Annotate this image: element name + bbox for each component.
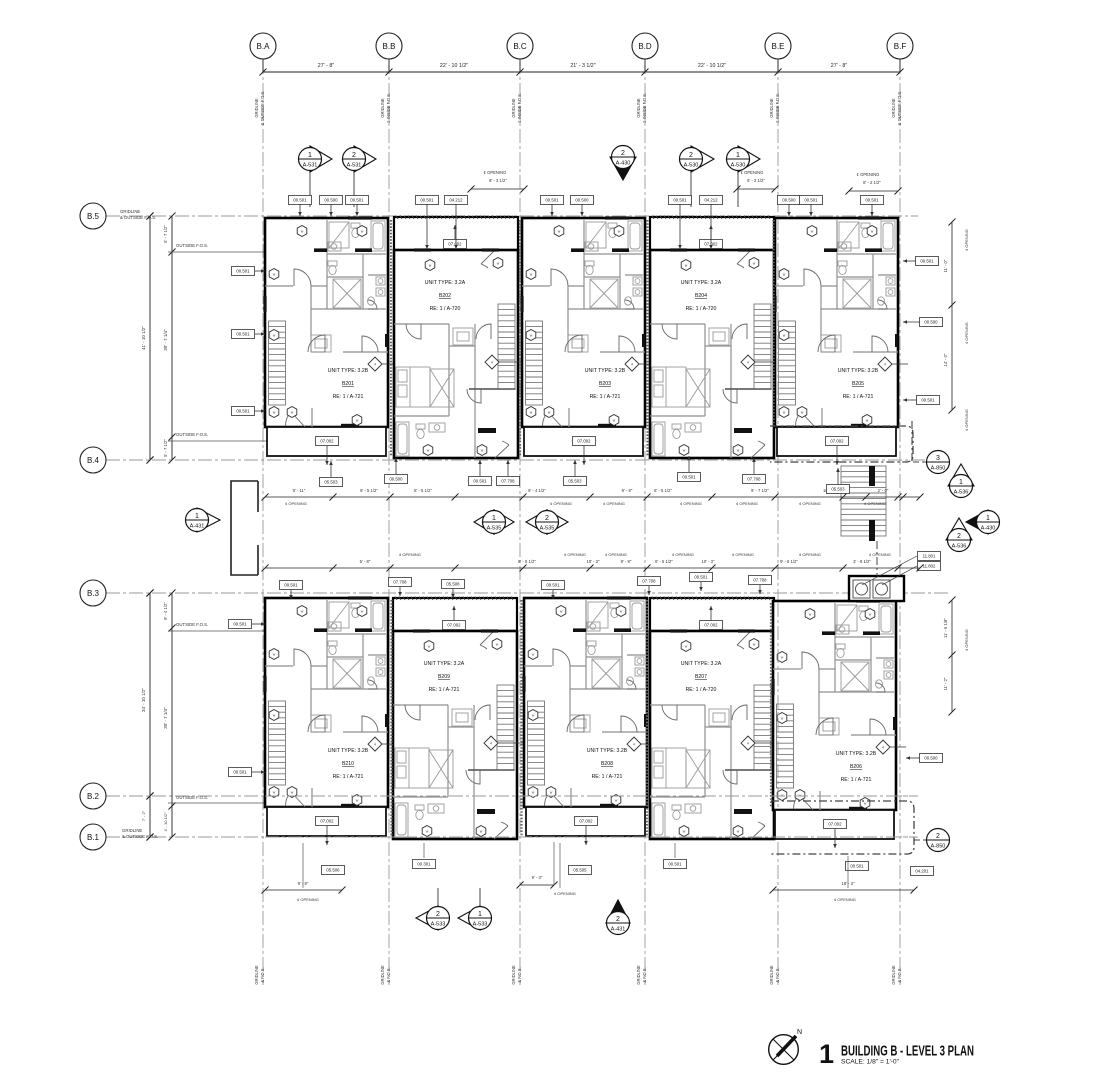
svg-text:A-535: A-535 xyxy=(540,526,555,532)
svg-text:B.5: B.5 xyxy=(87,212,100,221)
svg-text:RE: 1 / A-721: RE: 1 / A-721 xyxy=(429,687,460,693)
svg-text:A-535: A-535 xyxy=(487,526,502,532)
svg-text:B207: B207 xyxy=(695,674,707,680)
svg-text:4: 4 xyxy=(633,743,635,747)
svg-text:RE: 1 / A-721: RE: 1 / A-721 xyxy=(841,777,872,783)
svg-text:A-530: A-530 xyxy=(731,163,746,169)
svg-text:B.C: B.C xyxy=(513,42,527,51)
svg-text:N: N xyxy=(797,1029,802,1036)
svg-text:04.212: 04.212 xyxy=(449,198,463,203)
svg-text:2' - 0": 2' - 0" xyxy=(878,488,889,493)
svg-text:00.500: 00.500 xyxy=(324,198,338,203)
svg-text:30' - 7 1/4": 30' - 7 1/4" xyxy=(163,329,168,351)
svg-text:¢ OPENING: ¢ OPENING xyxy=(732,552,754,557)
svg-text:GRIDLINE: GRIDLINE xyxy=(636,98,641,118)
svg-text:OUTSIDE F.O.S.: OUTSIDE F.O.S. xyxy=(176,432,208,437)
svg-text:A-850: A-850 xyxy=(931,466,946,472)
svg-text:¢ OPENING: ¢ OPENING xyxy=(680,501,702,506)
svg-text:& INSIDE F.O.S.: & INSIDE F.O.S. xyxy=(517,93,522,123)
svg-text:27' - 8": 27' - 8" xyxy=(318,63,335,69)
svg-text:UNIT TYPE: 3.2A: UNIT TYPE: 3.2A xyxy=(681,280,722,286)
svg-text:B202: B202 xyxy=(439,293,451,299)
svg-text:& F.O.S.: & F.O.S. xyxy=(386,967,391,982)
svg-text:34' - 10 1/2": 34' - 10 1/2" xyxy=(141,688,146,712)
svg-text:4: 4 xyxy=(747,742,749,746)
svg-text:B201: B201 xyxy=(342,381,354,387)
svg-text:9' - 5 1/2": 9' - 5 1/2" xyxy=(360,488,378,493)
svg-text:RE: 1 / A-721: RE: 1 / A-721 xyxy=(333,394,364,400)
svg-text:5' - 7 1/2": 5' - 7 1/2" xyxy=(163,439,168,457)
svg-text:00.501: 00.501 xyxy=(420,198,434,203)
svg-text:UNIT TYPE: 3.2B: UNIT TYPE: 3.2B xyxy=(328,368,369,374)
svg-text:2: 2 xyxy=(352,152,356,159)
svg-text:07.002: 07.002 xyxy=(579,819,593,824)
svg-text:¢ OPENING: ¢ OPENING xyxy=(605,552,627,557)
svg-text:B210: B210 xyxy=(342,761,354,767)
svg-text:11.801: 11.801 xyxy=(923,554,936,559)
svg-text:UNIT TYPE: 3.2A: UNIT TYPE: 3.2A xyxy=(424,661,465,667)
svg-text:A-431: A-431 xyxy=(190,524,205,530)
svg-text:OUTSIDE F.O.S.: OUTSIDE F.O.S. xyxy=(176,795,208,800)
svg-text:& OUTSIDE F.O.S.: & OUTSIDE F.O.S. xyxy=(260,91,265,126)
svg-text:1: 1 xyxy=(736,152,740,159)
svg-text:B.E: B.E xyxy=(772,42,785,51)
svg-text:00.501: 00.501 xyxy=(233,770,247,775)
svg-text:B.4: B.4 xyxy=(87,456,100,465)
svg-text:2: 2 xyxy=(936,833,940,840)
svg-text:07.708: 07.708 xyxy=(753,578,767,583)
svg-text:6' - 2 1/2": 6' - 2 1/2" xyxy=(747,178,765,183)
svg-text:GRIDLINE: GRIDLINE xyxy=(636,965,641,985)
svg-text:4: 4 xyxy=(490,742,492,746)
svg-text:05.508: 05.508 xyxy=(446,582,460,587)
svg-text:00.301: 00.301 xyxy=(417,862,431,867)
svg-text:RE: 1 / A-720: RE: 1 / A-720 xyxy=(686,687,717,693)
svg-text:B206: B206 xyxy=(850,764,862,770)
svg-text:07.002: 07.002 xyxy=(320,819,334,824)
svg-text:18' - 3": 18' - 3" xyxy=(842,881,856,886)
svg-text:GRIDLINE: GRIDLINE xyxy=(511,98,516,118)
svg-text:8' - 2 1/2": 8' - 2 1/2" xyxy=(863,180,881,185)
svg-text:¢ OPENING: ¢ OPENING xyxy=(799,552,821,557)
svg-text:B.1: B.1 xyxy=(87,833,100,842)
svg-text:BUILDING B - LEVEL 3 PLAN: BUILDING B - LEVEL 3 PLAN xyxy=(841,1044,974,1060)
svg-text:GRIDLINE: GRIDLINE xyxy=(254,965,259,985)
svg-text:00.501: 00.501 xyxy=(694,575,708,580)
svg-text:00.501: 00.501 xyxy=(545,198,559,203)
svg-text:05.503: 05.503 xyxy=(831,487,845,492)
svg-text:B209: B209 xyxy=(438,674,450,680)
svg-text:1: 1 xyxy=(986,515,990,522)
svg-text:1: 1 xyxy=(308,152,312,159)
svg-text:9' - 7 1/2": 9' - 7 1/2" xyxy=(751,488,769,493)
svg-text:& F.O.S.: & F.O.S. xyxy=(897,967,902,982)
svg-text:2: 2 xyxy=(545,515,549,522)
svg-text:07.708: 07.708 xyxy=(501,479,515,484)
svg-text:UNIT TYPE: 3.2B: UNIT TYPE: 3.2B xyxy=(328,748,369,754)
svg-text:B205: B205 xyxy=(852,381,864,387)
svg-text:11' - 2": 11' - 2" xyxy=(943,677,948,690)
svg-text:00.501: 00.501 xyxy=(682,475,696,480)
svg-text:GRIDLINE: GRIDLINE xyxy=(769,98,774,118)
svg-text:00.501: 00.501 xyxy=(293,198,307,203)
svg-text:8' - 5 1/2": 8' - 5 1/2" xyxy=(654,488,672,493)
svg-text:¢ OPENING: ¢ OPENING xyxy=(964,409,969,431)
svg-text:& F.O.S.: & F.O.S. xyxy=(517,967,522,982)
svg-text:RE: 1 / A-720: RE: 1 / A-720 xyxy=(686,306,717,312)
svg-text:11' - 6 1/8": 11' - 6 1/8" xyxy=(943,618,948,638)
svg-text:5' - 8": 5' - 8" xyxy=(360,559,371,564)
svg-text:& OUTSIDE F.O.S.: & OUTSIDE F.O.S. xyxy=(120,215,156,220)
svg-text:11' - 0": 11' - 0" xyxy=(943,259,948,272)
svg-text:3: 3 xyxy=(936,455,940,462)
svg-text:¢ OPENING: ¢ OPENING xyxy=(736,501,758,506)
svg-text:B.F: B.F xyxy=(894,42,907,51)
svg-text:¢ OPENING: ¢ OPENING xyxy=(964,629,969,651)
svg-text:8' - 5 1/2": 8' - 5 1/2" xyxy=(518,559,536,564)
svg-text:4: 4 xyxy=(882,746,884,750)
svg-text:¢ OPENING: ¢ OPENING xyxy=(564,552,586,557)
svg-text:A-850: A-850 xyxy=(931,844,946,850)
svg-text:00.501: 00.501 xyxy=(921,398,935,403)
svg-text:1: 1 xyxy=(819,1039,834,1069)
svg-text:OUTSIDE F.O.S.: OUTSIDE F.O.S. xyxy=(176,243,208,248)
svg-text:¢ OPENING: ¢ OPENING xyxy=(799,501,821,506)
svg-text:B208: B208 xyxy=(601,761,613,767)
svg-text:GRIDLINE: GRIDLINE xyxy=(891,98,896,118)
svg-text:UNIT TYPE: 3.2A: UNIT TYPE: 3.2A xyxy=(681,661,722,667)
svg-text:A-531: A-531 xyxy=(347,163,362,169)
svg-text:A-533: A-533 xyxy=(431,922,446,928)
svg-text:GRIDLINE: GRIDLINE xyxy=(254,98,259,118)
svg-text:¢ OPENING: ¢ OPENING xyxy=(603,501,625,506)
svg-text:00.501: 00.501 xyxy=(865,198,879,203)
svg-text:00.501: 00.501 xyxy=(673,198,687,203)
svg-text:UNIT TYPE: 3.2B: UNIT TYPE: 3.2B xyxy=(585,368,626,374)
svg-text:4' - 10 1/2": 4' - 10 1/2" xyxy=(163,812,168,832)
svg-text:& INSIDE F.O.S.: & INSIDE F.O.S. xyxy=(775,93,780,123)
svg-text:RE: 1 / A-721: RE: 1 / A-721 xyxy=(843,394,874,400)
svg-text:1: 1 xyxy=(478,911,482,918)
svg-text:22' - 10 1/2": 22' - 10 1/2" xyxy=(698,63,726,69)
svg-text:¢ OPENING: ¢ OPENING xyxy=(964,322,969,344)
svg-text:¢ OPENING: ¢ OPENING xyxy=(741,170,764,175)
svg-text:A-536: A-536 xyxy=(954,490,969,496)
svg-text:07.002: 07.002 xyxy=(320,439,334,444)
svg-text:00.500: 00.500 xyxy=(575,198,589,203)
svg-text:7' - 2": 7' - 2" xyxy=(141,810,146,821)
svg-text:¢ OPENING: ¢ OPENING xyxy=(864,501,886,506)
svg-text:00.501: 00.501 xyxy=(236,409,250,414)
svg-text:¢ OPENING: ¢ OPENING xyxy=(554,891,576,896)
svg-text:GRIDLINE: GRIDLINE xyxy=(120,209,140,214)
svg-text:SCALE: 1/8" = 1'-0": SCALE: 1/8" = 1'-0" xyxy=(841,1059,899,1066)
svg-text:GRIDLINE: GRIDLINE xyxy=(380,98,385,118)
svg-text:¢ OPENING: ¢ OPENING xyxy=(297,897,319,902)
svg-text:8' - 3 1/2": 8' - 3 1/2" xyxy=(489,178,507,183)
svg-text:05.503: 05.503 xyxy=(568,479,582,484)
svg-text:00.501: 00.501 xyxy=(284,583,298,588)
svg-text:07.708: 07.708 xyxy=(747,477,761,482)
svg-text:00.501: 00.501 xyxy=(236,332,250,337)
svg-text:¢ OPENING: ¢ OPENING xyxy=(484,170,507,175)
svg-text:00.500: 00.500 xyxy=(924,320,938,325)
svg-text:2: 2 xyxy=(957,533,961,540)
svg-text:00.501: 00.501 xyxy=(920,259,934,264)
svg-text:00.501: 00.501 xyxy=(668,862,682,867)
svg-text:00.500: 00.500 xyxy=(782,198,796,203)
svg-text:UNIT TYPE: 3.2A: UNIT TYPE: 3.2A xyxy=(425,280,466,286)
svg-text:41' - 10 1/2": 41' - 10 1/2" xyxy=(141,326,146,350)
svg-text:9' - 4 1/2": 9' - 4 1/2" xyxy=(528,488,546,493)
svg-text:00.501: 00.501 xyxy=(236,269,250,274)
svg-text:00.500: 00.500 xyxy=(924,756,938,761)
svg-text:A-530: A-530 xyxy=(684,163,699,169)
svg-text:B.D: B.D xyxy=(638,42,652,51)
svg-text:3' - 8 1/2": 3' - 8 1/2" xyxy=(853,559,871,564)
svg-text:05.505: 05.505 xyxy=(573,868,587,873)
svg-text:10' - 3": 10' - 3" xyxy=(587,559,601,564)
svg-text:GRIDLINE: GRIDLINE xyxy=(380,965,385,985)
svg-text:04.201: 04.201 xyxy=(915,869,929,874)
svg-text:B204: B204 xyxy=(695,293,707,299)
svg-text:A-430: A-430 xyxy=(981,526,996,532)
svg-text:9' - 11": 9' - 11" xyxy=(293,488,306,493)
svg-text:RE: 1 / A-721: RE: 1 / A-721 xyxy=(590,394,621,400)
svg-text:00.500: 00.500 xyxy=(389,477,403,482)
svg-text:00.501: 00.501 xyxy=(473,479,487,484)
svg-text:1: 1 xyxy=(959,479,963,486)
svg-text:9' - 3": 9' - 3" xyxy=(532,875,543,880)
svg-text:05.506: 05.506 xyxy=(326,868,340,873)
svg-text:9' - 8": 9' - 8" xyxy=(621,559,632,564)
svg-text:¢ OPENING: ¢ OPENING xyxy=(550,501,572,506)
svg-text:21' - 3 1/2": 21' - 3 1/2" xyxy=(570,63,595,69)
svg-text:07.002: 07.002 xyxy=(830,439,844,444)
svg-text:07.708: 07.708 xyxy=(393,580,407,585)
svg-text:A-533: A-533 xyxy=(473,922,488,928)
svg-text:4: 4 xyxy=(884,363,886,367)
svg-text:9' - 8": 9' - 8" xyxy=(622,488,633,493)
svg-text:2: 2 xyxy=(689,152,693,159)
svg-text:2: 2 xyxy=(436,911,440,918)
svg-text:2: 2 xyxy=(621,150,625,157)
svg-text:RE: 1 / A-721: RE: 1 / A-721 xyxy=(333,774,364,780)
svg-text:B.B: B.B xyxy=(383,42,396,51)
svg-text:¢ OPENING: ¢ OPENING xyxy=(964,229,969,251)
svg-text:05.503: 05.503 xyxy=(324,480,338,485)
svg-text:4: 4 xyxy=(631,363,633,367)
svg-text:& F.O.S.: & F.O.S. xyxy=(260,967,265,982)
svg-text:GRIDLINE: GRIDLINE xyxy=(769,965,774,985)
svg-text:9' - 6 1/2": 9' - 6 1/2" xyxy=(780,559,798,564)
svg-text:07.002: 07.002 xyxy=(704,623,718,628)
svg-text:1: 1 xyxy=(492,515,496,522)
svg-text:27' - 8": 27' - 8" xyxy=(831,63,848,69)
svg-text:¢ OPENING: ¢ OPENING xyxy=(857,172,880,177)
svg-text:00.501: 00.501 xyxy=(233,622,247,627)
svg-text:GRIDLINE: GRIDLINE xyxy=(122,828,142,833)
svg-text:07.002: 07.002 xyxy=(828,822,842,827)
svg-text:4: 4 xyxy=(374,363,376,367)
svg-text:8' - 5 1/2": 8' - 5 1/2" xyxy=(414,488,432,493)
svg-text:00.501: 00.501 xyxy=(850,864,864,869)
svg-text:A-531: A-531 xyxy=(303,163,318,169)
svg-text:B.A: B.A xyxy=(257,42,271,51)
svg-text:B.3: B.3 xyxy=(87,589,100,598)
svg-text:¢ OPENING: ¢ OPENING xyxy=(834,897,856,902)
svg-text:07.002: 07.002 xyxy=(447,623,461,628)
svg-text:¢ OPENING: ¢ OPENING xyxy=(285,501,307,506)
svg-text:& F.O.S.: & F.O.S. xyxy=(775,967,780,982)
svg-text:& OUTSIDE F.O.S.: & OUTSIDE F.O.S. xyxy=(122,834,158,839)
svg-text:30' - 7 1/4": 30' - 7 1/4" xyxy=(163,707,168,729)
svg-text:GRIDLINE: GRIDLINE xyxy=(511,965,516,985)
svg-text:A-431: A-431 xyxy=(611,927,626,933)
svg-text:¢ OPENING: ¢ OPENING xyxy=(399,552,421,557)
svg-text:& F.O.S.: & F.O.S. xyxy=(642,967,647,982)
svg-text:14' - 0": 14' - 0" xyxy=(943,353,948,367)
svg-text:RE: 1 / A-720: RE: 1 / A-720 xyxy=(430,306,461,312)
svg-text:22' - 10 1/2": 22' - 10 1/2" xyxy=(440,63,468,69)
svg-text:¢ OPENING: ¢ OPENING xyxy=(869,552,891,557)
svg-text:8' - 5 1/2": 8' - 5 1/2" xyxy=(655,559,673,564)
svg-text:07.002: 07.002 xyxy=(577,439,591,444)
svg-text:& INSIDE F.O.S.: & INSIDE F.O.S. xyxy=(386,93,391,123)
svg-text:07.708: 07.708 xyxy=(642,579,656,584)
svg-text:RE: 1 / A-721: RE: 1 / A-721 xyxy=(592,774,623,780)
svg-text:4: 4 xyxy=(491,361,493,365)
svg-text:9' - 9": 9' - 9" xyxy=(298,881,309,886)
svg-text:04.212: 04.212 xyxy=(704,198,718,203)
svg-text:9' - 4 1/2": 9' - 4 1/2" xyxy=(163,602,168,620)
svg-text:00.501: 00.501 xyxy=(350,198,364,203)
svg-text:11.802: 11.802 xyxy=(923,564,936,569)
svg-text:00.501: 00.501 xyxy=(804,198,818,203)
svg-text:5' - 7 1/2": 5' - 7 1/2" xyxy=(163,225,168,243)
svg-text:& OUTSIDE F.O.S.: & OUTSIDE F.O.S. xyxy=(897,91,902,126)
svg-text:A-430: A-430 xyxy=(616,161,631,167)
svg-text:10' - 3": 10' - 3" xyxy=(702,559,716,564)
svg-text:4: 4 xyxy=(374,743,376,747)
svg-text:OUTSIDE F.O.S.: OUTSIDE F.O.S. xyxy=(176,622,208,627)
svg-text:00.501: 00.501 xyxy=(546,583,560,588)
svg-text:& INSIDE F.O.S.: & INSIDE F.O.S. xyxy=(642,93,647,123)
svg-text:4: 4 xyxy=(747,361,749,365)
svg-text:GRIDLINE: GRIDLINE xyxy=(891,965,896,985)
svg-text:B203: B203 xyxy=(599,381,611,387)
svg-text:UNIT TYPE: 3.2B: UNIT TYPE: 3.2B xyxy=(838,368,879,374)
svg-text:1: 1 xyxy=(195,513,199,520)
svg-text:UNIT TYPE: 3.2B: UNIT TYPE: 3.2B xyxy=(836,751,877,757)
svg-text:¢ OPENING: ¢ OPENING xyxy=(672,552,694,557)
svg-text:UNIT TYPE: 3.2B: UNIT TYPE: 3.2B xyxy=(587,748,628,754)
svg-text:A-536: A-536 xyxy=(952,544,967,550)
svg-text:2: 2 xyxy=(616,916,620,923)
svg-text:B.2: B.2 xyxy=(87,792,100,801)
